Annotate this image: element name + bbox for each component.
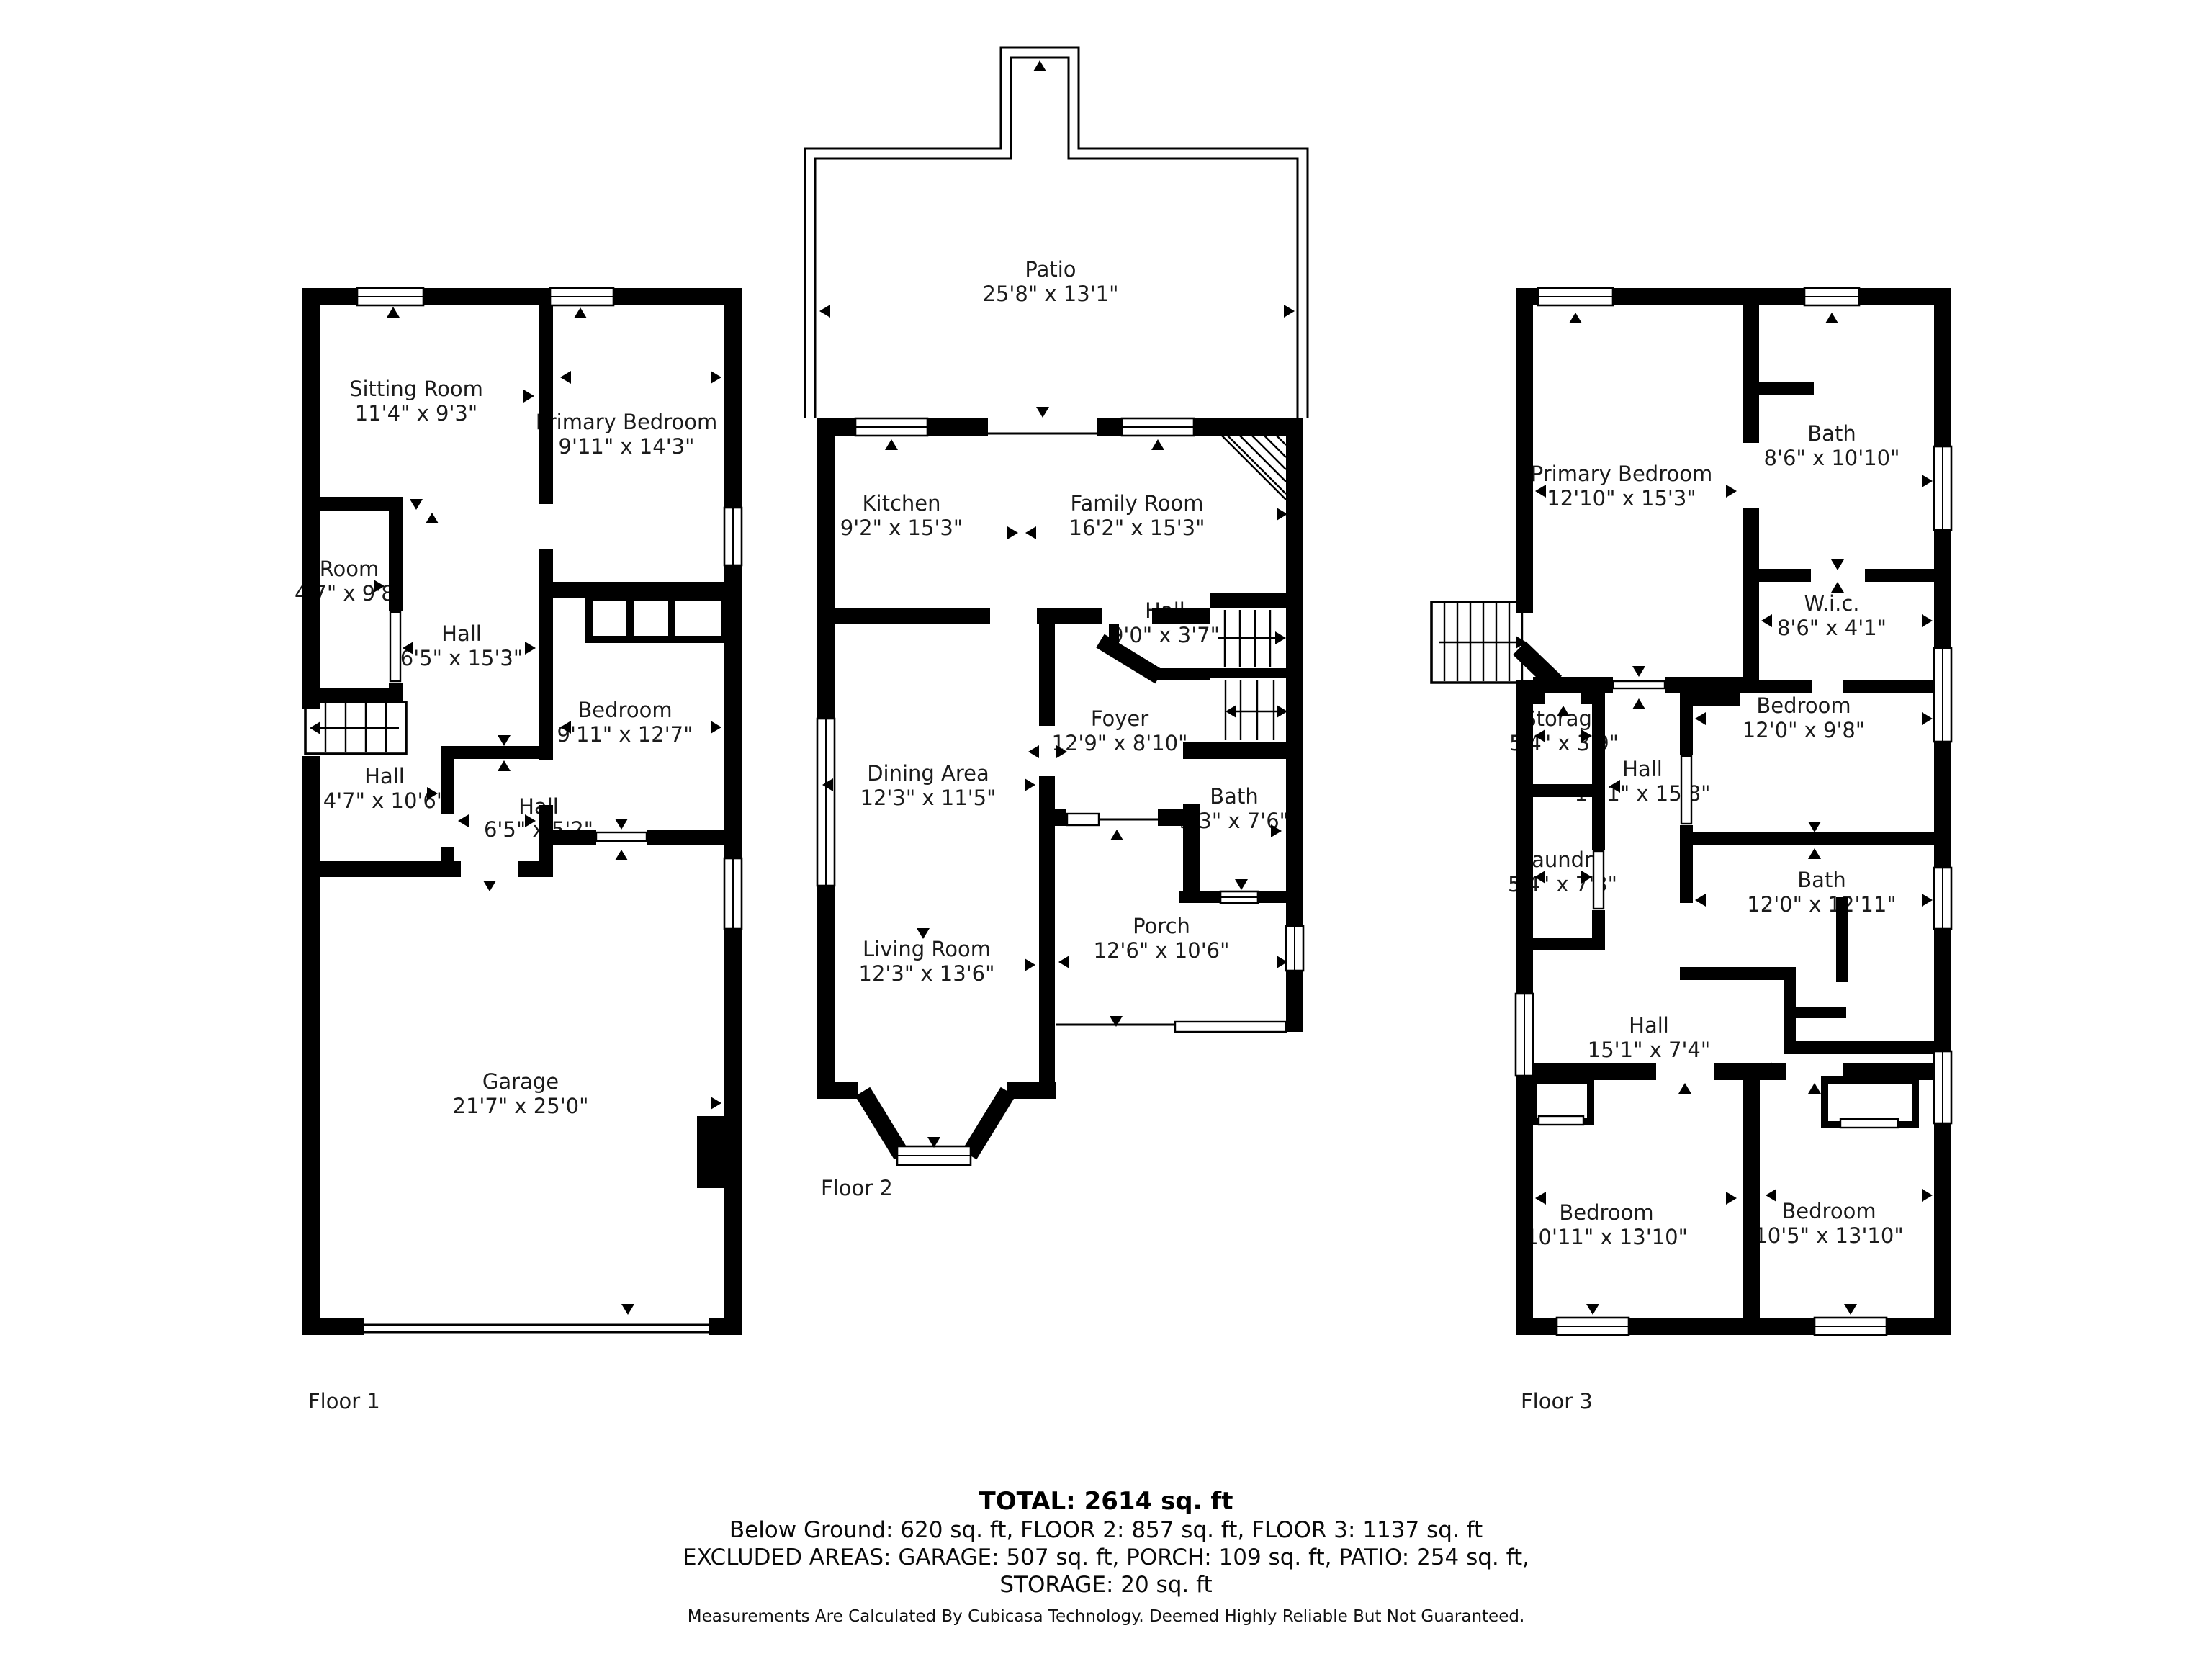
- room-label: Patio: [1025, 257, 1076, 282]
- room-dims: 12'10" x 15'3": [1547, 486, 1696, 511]
- room-label: Bedroom: [1756, 693, 1851, 718]
- room-dims: 8'6" x 10'10": [1764, 446, 1900, 470]
- floor-3-stairs: [1431, 602, 1533, 683]
- room-label: Hall: [1629, 1013, 1669, 1038]
- room-dims: 12'6" x 10'6": [1094, 938, 1230, 963]
- room-label: Bath: [1797, 868, 1845, 892]
- floor-1-labels: Sitting Room 11'4" x 9'3" Primary Bedroo…: [295, 377, 717, 1413]
- floor-label: Floor 2: [821, 1176, 893, 1200]
- room-label: Foyer: [1091, 706, 1148, 731]
- room-label: Porch: [1133, 914, 1190, 938]
- floor-1-closets: [589, 598, 724, 639]
- floor-3-diagonal-wall: [1519, 648, 1555, 683]
- room-label: Living Room: [863, 937, 991, 961]
- floor-label: Floor 3: [1521, 1389, 1593, 1413]
- disclaimer: Measurements Are Calculated By Cubicasa …: [688, 1607, 1525, 1626]
- room-dims: 12'0" x 9'8": [1743, 718, 1865, 742]
- room-dims: 9'11" x 14'3": [559, 434, 695, 459]
- room-dims: 9'2" x 15'3": [840, 516, 963, 540]
- floor-2-plan: Patio 25'8" x 13'1" Kitchen 9'2" x 15'3"…: [805, 48, 1308, 1200]
- room-label: W.i.c.: [1804, 591, 1859, 616]
- floor-2-patio-outline: [805, 48, 1308, 418]
- room-label: Sitting Room: [349, 377, 483, 401]
- room-label: Family Room: [1070, 491, 1203, 516]
- room-label: Garage: [482, 1069, 559, 1094]
- room-label: Bedroom: [577, 698, 672, 722]
- summary-excluded: EXCLUDED AREAS: GARAGE: 507 sq. ft, PORC…: [683, 1545, 1529, 1570]
- floor-2-labels: Patio 25'8" x 13'1" Kitchen 9'2" x 15'3"…: [821, 257, 1289, 1200]
- room-dims: 10'11" x 13'10": [1525, 1225, 1688, 1249]
- floorplan-page: Sitting Room 11'4" x 9'3" Primary Bedroo…: [0, 0, 2212, 1659]
- summary-block: TOTAL: 2614 sq. ft Below Ground: 620 sq.…: [683, 1487, 1529, 1626]
- room-label: Room: [320, 557, 379, 581]
- room-label: Hall: [364, 764, 405, 788]
- floorplan-canvas: Sitting Room 11'4" x 9'3" Primary Bedroo…: [0, 0, 2212, 1659]
- room-dims: 12'0" x 12'11": [1747, 892, 1896, 917]
- floor-3-plan: Primary Bedroom 12'10" x 15'3" Bath 8'6"…: [1431, 288, 1951, 1413]
- room-label: Kitchen: [863, 491, 941, 516]
- room-label: Bedroom: [1559, 1200, 1653, 1225]
- room-label: Bedroom: [1781, 1199, 1876, 1223]
- room-dims: 9'0" x 3'7": [1110, 623, 1220, 647]
- room-dims: 25'8" x 13'1": [983, 282, 1119, 306]
- room-label: Primary Bedroom: [536, 410, 717, 434]
- summary-excluded-2: STORAGE: 20 sq. ft: [999, 1572, 1212, 1598]
- room-dims: 10'5" x 13'10": [1754, 1223, 1903, 1248]
- room-label: Hall: [1622, 757, 1663, 781]
- room-dims: 11'4" x 9'3": [355, 401, 477, 426]
- room-dims: 12'3" x 13'6": [859, 961, 995, 986]
- floor-3-closets: [1533, 1080, 1915, 1128]
- room-label: Dining Area: [867, 761, 989, 786]
- floor-1-stairs: [305, 702, 406, 754]
- room-dims: 9'11" x 12'7": [557, 722, 693, 747]
- room-label: Bath: [1210, 784, 1258, 809]
- summary-breakdown: Below Ground: 620 sq. ft, FLOOR 2: 857 s…: [729, 1517, 1483, 1543]
- room-label: Hall: [441, 621, 482, 646]
- floor-label: Floor 1: [308, 1389, 380, 1413]
- room-dims: 6'5" x 15'3": [400, 646, 523, 670]
- room-label: Primary Bedroom: [1531, 462, 1712, 486]
- summary-total: TOTAL: 2614 sq. ft: [979, 1487, 1233, 1516]
- room-dims: 16'2" x 15'3": [1069, 516, 1205, 540]
- room-dims: 15'1" x 7'4": [1588, 1038, 1710, 1062]
- room-dims: 21'7" x 25'0": [453, 1094, 589, 1118]
- floor-2-corner-stairs-hatch: [1222, 436, 1286, 500]
- floor-1-plan: Sitting Room 11'4" x 9'3" Primary Bedroo…: [295, 288, 742, 1413]
- room-label: Bath: [1807, 421, 1856, 446]
- room-dims: 8'6" x 4'1": [1777, 616, 1887, 640]
- room-dims: 12'3" x 11'5": [860, 786, 997, 810]
- room-dims: 12'9" x 8'10": [1052, 731, 1188, 755]
